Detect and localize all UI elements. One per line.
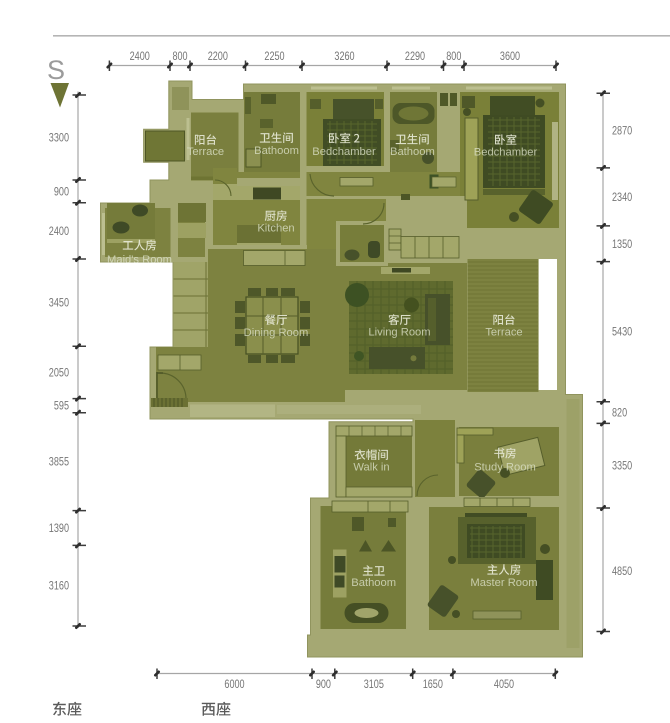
svg-text:2400: 2400 [49, 226, 69, 238]
svg-text:3300: 3300 [49, 133, 69, 145]
svg-text:2400: 2400 [130, 51, 150, 63]
svg-text:2050: 2050 [49, 368, 69, 380]
svg-text:1350: 1350 [612, 239, 632, 251]
svg-text:3105: 3105 [364, 679, 384, 691]
svg-text:800: 800 [446, 51, 461, 63]
svg-text:3260: 3260 [334, 51, 354, 63]
svg-text:4050: 4050 [494, 679, 514, 691]
svg-text:595: 595 [54, 401, 69, 413]
svg-text:2870: 2870 [612, 126, 632, 138]
svg-text:Dining Room: Dining Room [244, 327, 309, 339]
svg-text:3855: 3855 [49, 457, 69, 469]
svg-text:900: 900 [54, 186, 69, 198]
svg-text:3160: 3160 [49, 581, 69, 593]
svg-text:Walk in: Walk in [353, 462, 389, 474]
svg-text:Terrace: Terrace [187, 146, 224, 158]
svg-text:Bathoom: Bathoom [254, 145, 299, 157]
svg-text:3350: 3350 [612, 461, 632, 473]
svg-text:Master Room: Master Room [470, 577, 537, 589]
svg-text:1390: 1390 [49, 523, 69, 535]
svg-text:Bathoom: Bathoom [390, 146, 435, 158]
svg-text:2340: 2340 [612, 192, 632, 204]
svg-text:Terrace: Terrace [485, 327, 522, 339]
svg-text:5430: 5430 [612, 327, 632, 339]
svg-text:820: 820 [612, 408, 627, 420]
svg-text:1650: 1650 [423, 679, 443, 691]
svg-text:3600: 3600 [500, 51, 520, 63]
svg-text:Bedchamber: Bedchamber [474, 147, 538, 159]
svg-text:Maid's Room: Maid's Room [107, 254, 172, 266]
svg-text:S: S [47, 55, 65, 85]
svg-text:Bedchamber: Bedchamber [312, 146, 376, 158]
svg-text:800: 800 [172, 51, 187, 63]
svg-text:900: 900 [316, 679, 331, 691]
svg-text:2250: 2250 [264, 51, 284, 63]
svg-text:3450: 3450 [49, 298, 69, 310]
svg-text:2200: 2200 [208, 51, 228, 63]
svg-text:6000: 6000 [224, 679, 244, 691]
svg-text:Living Room: Living Room [368, 327, 430, 339]
svg-text:Bathoom: Bathoom [351, 577, 396, 589]
svg-text:2290: 2290 [405, 51, 425, 63]
svg-text:Study Room: Study Room [474, 462, 536, 474]
svg-text:4850: 4850 [612, 566, 632, 578]
svg-text:Kitchen: Kitchen [257, 223, 294, 235]
